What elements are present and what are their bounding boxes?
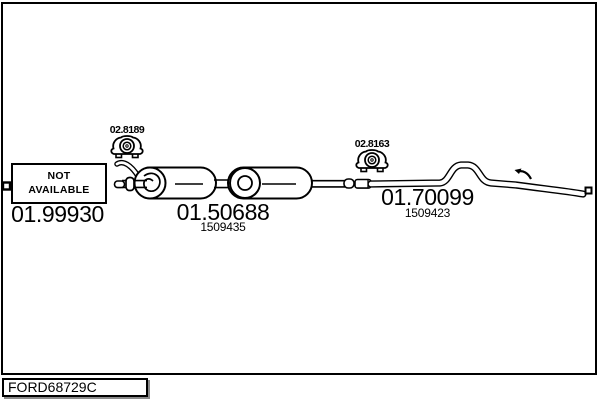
- mount-code-rear: 02.8163: [347, 139, 397, 150]
- ref-code-middle-silencer: 1509435: [176, 221, 270, 233]
- exhaust-diagram-page: NOT AVAILABLE 01.99930 01.50688 1509435 …: [0, 0, 600, 400]
- exhaust-mount-icon: [356, 150, 387, 172]
- vehicle-code-box: FORD68729C: [2, 378, 148, 397]
- mount-code-middle: 02.8189: [102, 125, 152, 136]
- vehicle-code-label: FORD68729C: [8, 379, 97, 395]
- part-code-front-pipe: 01.99930: [8, 203, 107, 226]
- exhaust-mount-icon: [111, 136, 142, 158]
- not-available-line1: NOT: [47, 171, 70, 183]
- left-connector-marker: [3, 183, 10, 190]
- tailpipe-end-marker: [586, 188, 592, 194]
- middle-silencer-drawing: [115, 163, 355, 199]
- ref-code-rear-pipe: 1509423: [379, 207, 476, 219]
- not-available-line2: AVAILABLE: [28, 185, 89, 197]
- not-available-box: NOT AVAILABLE: [11, 163, 107, 204]
